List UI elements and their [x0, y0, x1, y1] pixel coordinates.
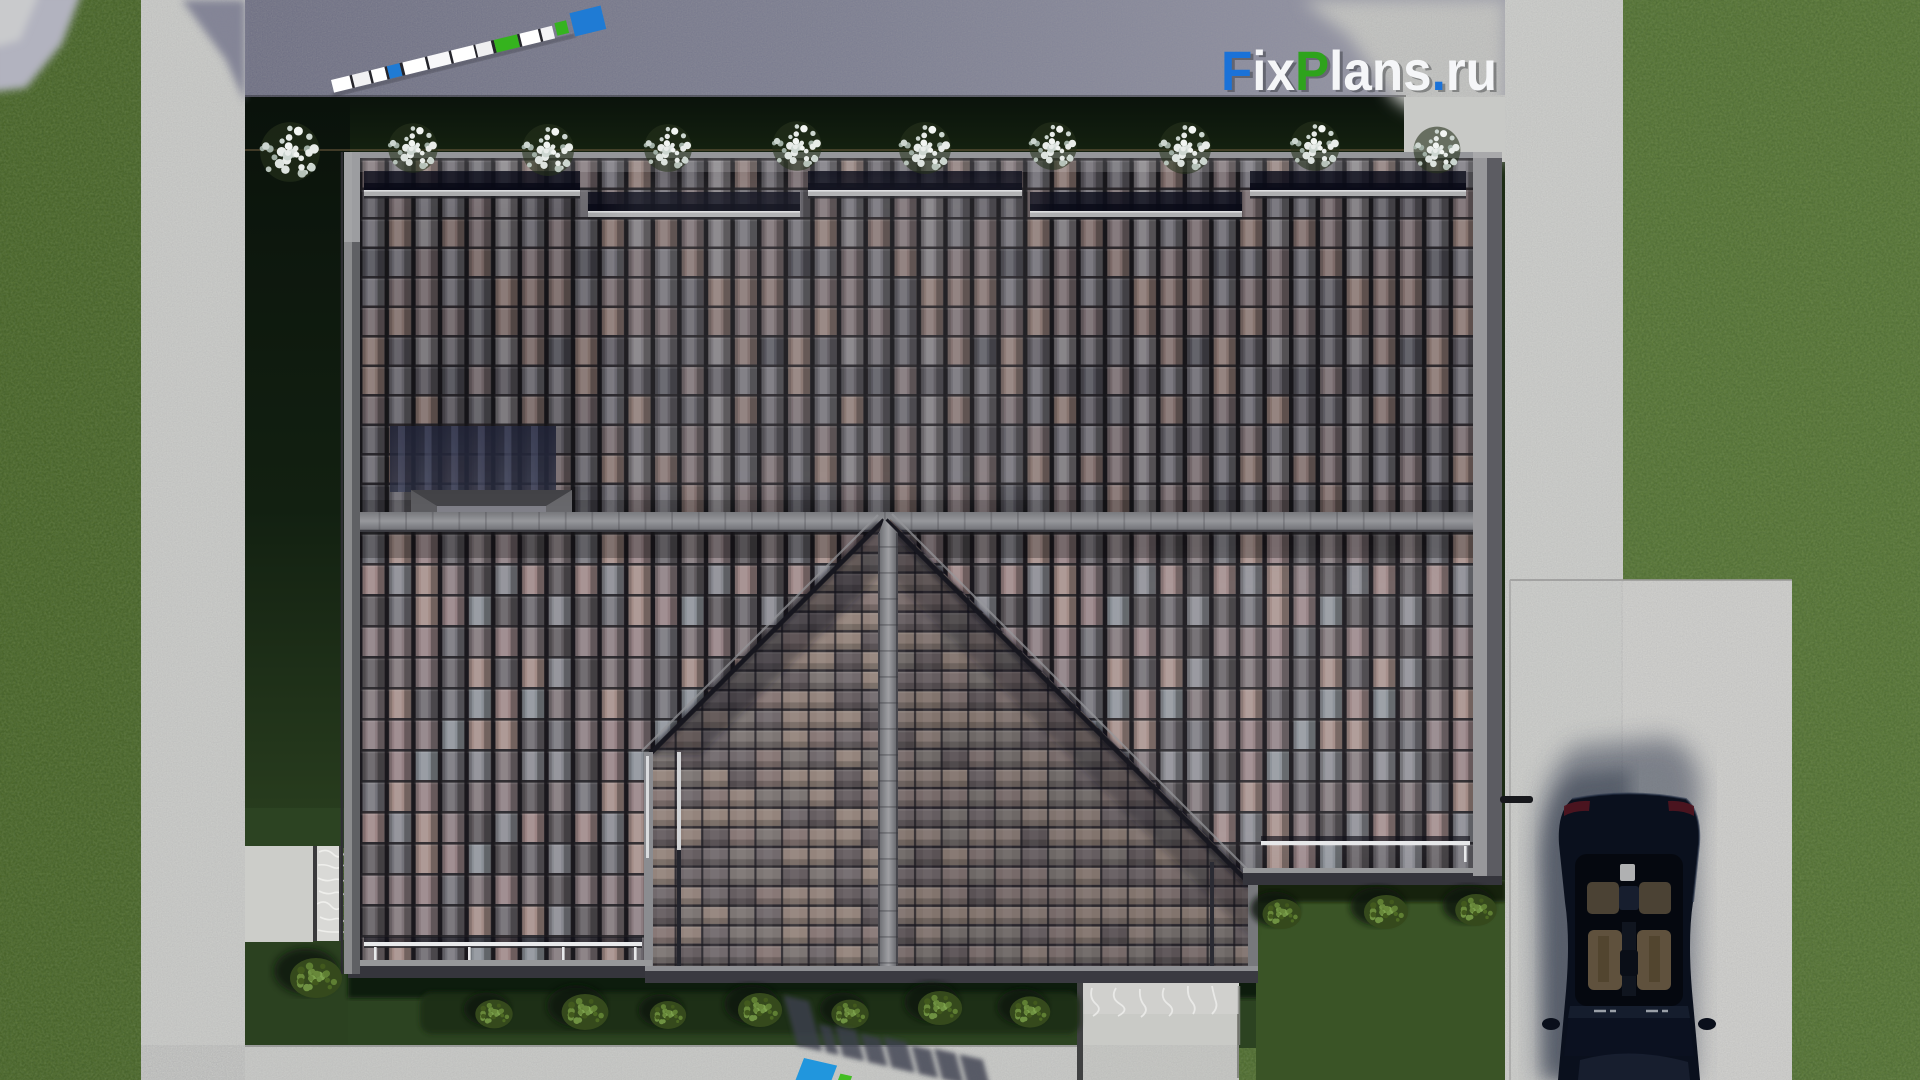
svg-text:FixPlans.ru: FixPlans.ru [1221, 39, 1497, 102]
